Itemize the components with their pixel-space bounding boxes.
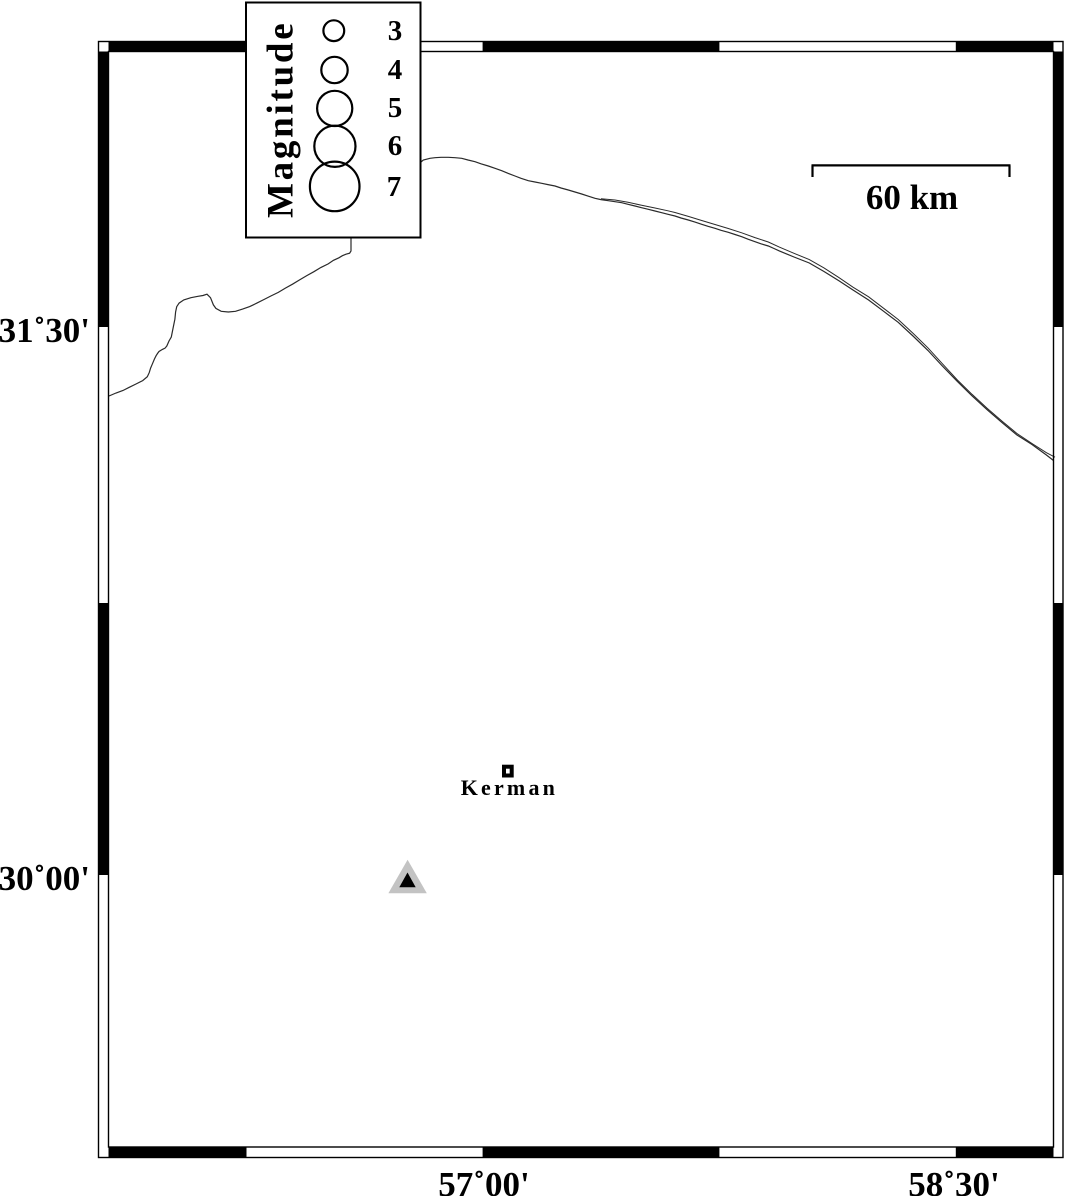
- svg-text:57˚00': 57˚00': [438, 1165, 529, 1196]
- svg-text:5: 5: [388, 92, 403, 124]
- svg-text:3: 3: [388, 15, 403, 47]
- svg-text:30˚00': 30˚00': [0, 859, 90, 898]
- svg-text:Kerman: Kerman: [461, 775, 558, 800]
- svg-text:4: 4: [388, 54, 403, 86]
- svg-text:7: 7: [387, 171, 402, 203]
- svg-text:31˚30': 31˚30': [0, 311, 90, 350]
- svg-text:Magnitude: Magnitude: [261, 21, 302, 218]
- svg-text:6: 6: [388, 130, 403, 162]
- svg-text:58˚30': 58˚30': [908, 1165, 999, 1196]
- svg-text:60 km: 60 km: [866, 178, 958, 217]
